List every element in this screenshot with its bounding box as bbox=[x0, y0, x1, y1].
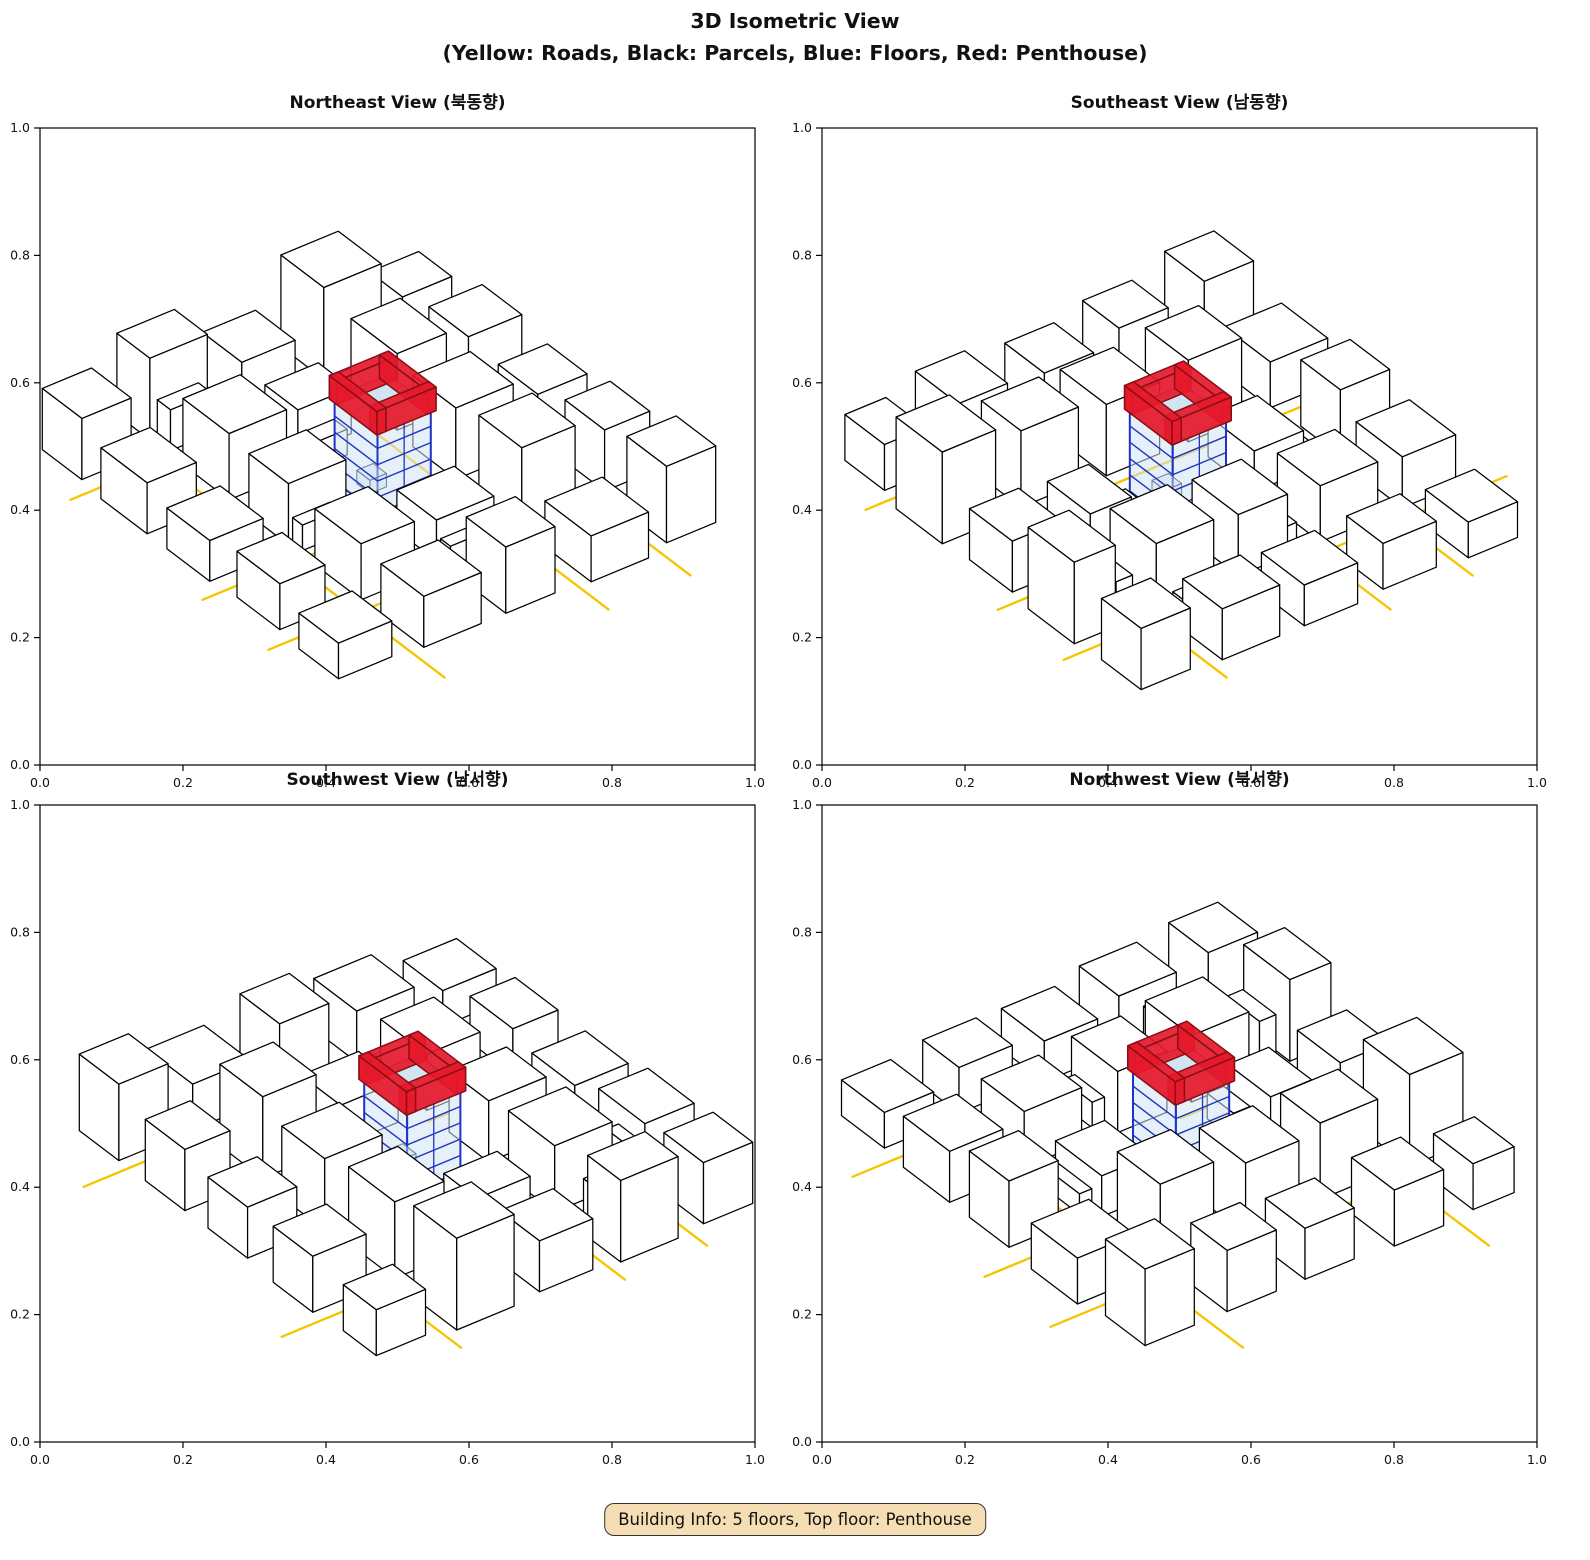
x-tick-label: 0.6 bbox=[459, 1452, 479, 1467]
panel-northeast: Northeast View (북동향) 0.00.00.20.20.40.40… bbox=[0, 88, 795, 794]
x-tick-label: 0.4 bbox=[316, 1452, 336, 1467]
y-tick-label: 0.2 bbox=[792, 1307, 812, 1322]
x-tick-label: 0.0 bbox=[30, 1452, 50, 1467]
y-tick-label: 0.8 bbox=[792, 924, 812, 939]
figure-title: 3D Isometric View (Yellow: Roads, Black:… bbox=[0, 6, 1590, 70]
panel-title-northeast: Northeast View (북동향) bbox=[40, 88, 755, 118]
scene-layer bbox=[845, 231, 1518, 690]
y-tick-label: 1.0 bbox=[10, 797, 30, 812]
x-tick-label: 0.8 bbox=[602, 1452, 622, 1467]
isometric-view-southeast: 0.00.00.20.20.40.40.60.60.80.81.01.0 bbox=[782, 118, 1577, 794]
y-tick-label: 0.2 bbox=[10, 1307, 30, 1322]
face bbox=[1172, 418, 1181, 445]
panel-northwest: Northwest View (북서향) 0.00.00.20.20.40.40… bbox=[782, 765, 1577, 1471]
y-tick-label: 0.6 bbox=[792, 1052, 812, 1067]
isometric-view-southwest: 0.00.00.20.20.40.40.60.60.80.81.01.0 bbox=[0, 795, 795, 1471]
isometric-view-northwest: 0.00.00.20.20.40.40.60.60.80.81.01.0 bbox=[782, 795, 1577, 1471]
y-tick-label: 1.0 bbox=[10, 120, 30, 135]
figure-title-line2: (Yellow: Roads, Black: Parcels, Blue: Fl… bbox=[0, 38, 1590, 70]
y-tick-label: 0.8 bbox=[792, 247, 812, 262]
y-tick-label: 0.8 bbox=[10, 247, 30, 262]
x-tick-label: 0.8 bbox=[1384, 1452, 1404, 1467]
x-tick-label: 0.6 bbox=[1241, 1452, 1261, 1467]
panel-title-southwest: Southwest View (남서향) bbox=[40, 765, 755, 795]
y-tick-label: 0.2 bbox=[792, 630, 812, 645]
scene-layer bbox=[79, 939, 752, 1356]
y-tick-label: 1.0 bbox=[792, 797, 812, 812]
y-tick-label: 0.4 bbox=[10, 1179, 30, 1194]
y-tick-label: 0.4 bbox=[792, 1179, 812, 1194]
x-tick-label: 0.4 bbox=[1098, 1452, 1118, 1467]
y-tick-label: 0.8 bbox=[10, 924, 30, 939]
scene-layer bbox=[42, 231, 715, 679]
y-tick-label: 0.6 bbox=[10, 375, 30, 390]
face bbox=[407, 1088, 416, 1115]
panel-title-northwest: Northwest View (북서향) bbox=[822, 765, 1537, 795]
figure-title-line1: 3D Isometric View bbox=[0, 6, 1590, 38]
x-tick-label: 0.2 bbox=[955, 1452, 975, 1467]
y-tick-label: 0.0 bbox=[792, 1434, 812, 1449]
x-tick-label: 1.0 bbox=[745, 1452, 765, 1467]
y-tick-label: 0.2 bbox=[10, 630, 30, 645]
y-tick-label: 0.4 bbox=[10, 502, 30, 517]
x-tick-label: 0.0 bbox=[812, 1452, 832, 1467]
isometric-view-northeast: 0.00.00.20.20.40.40.60.60.80.81.01.0 bbox=[0, 118, 795, 794]
y-tick-label: 0.0 bbox=[10, 1434, 30, 1449]
face bbox=[377, 408, 386, 435]
building-info-badge: Building Info: 5 floors, Top floor: Pent… bbox=[604, 1503, 986, 1536]
panel-southeast: Southeast View (남동향) 0.00.00.20.20.40.40… bbox=[782, 88, 1577, 794]
x-tick-label: 1.0 bbox=[1527, 1452, 1547, 1467]
y-tick-label: 1.0 bbox=[792, 120, 812, 135]
y-tick-label: 0.6 bbox=[792, 375, 812, 390]
y-tick-label: 0.6 bbox=[10, 1052, 30, 1067]
panel-title-southeast: Southeast View (남동향) bbox=[822, 88, 1537, 118]
face bbox=[1175, 1078, 1184, 1105]
panel-southwest: Southwest View (남서향) 0.00.00.20.20.40.40… bbox=[0, 765, 795, 1471]
scene-layer bbox=[842, 902, 1515, 1347]
y-tick-label: 0.4 bbox=[792, 502, 812, 517]
x-tick-label: 0.2 bbox=[173, 1452, 193, 1467]
